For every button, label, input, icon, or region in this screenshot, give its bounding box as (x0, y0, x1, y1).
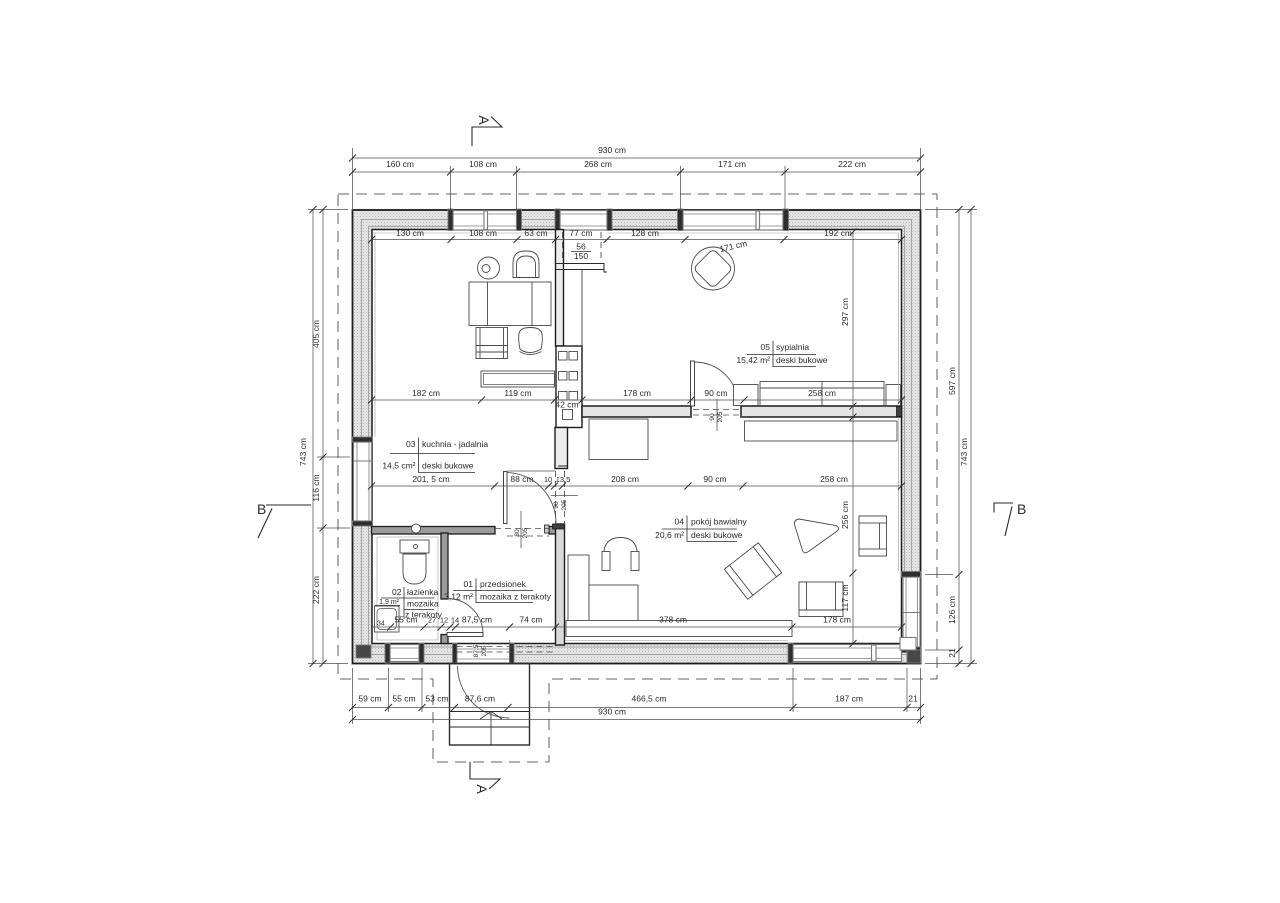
svg-text:B: B (257, 501, 266, 517)
svg-text:21: 21 (908, 694, 918, 704)
svg-text:178 cm: 178 cm (623, 388, 651, 398)
svg-text:150: 150 (574, 251, 588, 261)
svg-text:02: 02 (392, 587, 402, 597)
svg-text:14,5 cm²: 14,5 cm² (382, 461, 415, 471)
svg-text:405 cm: 405 cm (311, 320, 321, 348)
svg-text:05: 05 (761, 342, 771, 352)
svg-text:108 cm: 108 cm (469, 228, 497, 238)
svg-text:80: 80 (514, 529, 521, 537)
svg-text:14: 14 (451, 616, 459, 625)
svg-text:87,6 cm: 87,6 cm (465, 694, 495, 704)
svg-text:205: 205 (717, 411, 724, 422)
svg-text:160 cm: 160 cm (386, 159, 414, 169)
svg-text:90: 90 (709, 413, 716, 421)
svg-text:222 cm: 222 cm (838, 159, 866, 169)
svg-text:178 cm: 178 cm (823, 615, 851, 625)
svg-text:04: 04 (675, 517, 685, 527)
svg-text:55 cm: 55 cm (392, 694, 415, 704)
svg-text:10: 10 (544, 475, 552, 484)
svg-text:z terakoty: z terakoty (405, 610, 443, 620)
svg-text:378 cm: 378 cm (659, 615, 687, 625)
svg-text:117 cm: 117 cm (840, 584, 850, 611)
svg-text:201, 5 cm: 201, 5 cm (412, 474, 449, 484)
svg-text:łazienka: łazienka (407, 587, 438, 597)
svg-text:deski bukowe: deski bukowe (422, 461, 474, 471)
svg-text:A: A (474, 784, 490, 794)
svg-text:15,42 m²: 15,42 m² (736, 355, 770, 365)
svg-text:88 cm: 88 cm (510, 474, 533, 484)
svg-text:930 cm: 930 cm (598, 707, 626, 717)
svg-text:208 cm: 208 cm (611, 474, 639, 484)
svg-text:34: 34 (377, 621, 385, 628)
svg-text:258 cm: 258 cm (808, 388, 836, 398)
svg-text:87,5: 87,5 (473, 644, 480, 657)
svg-text:268 cm: 268 cm (584, 159, 612, 169)
svg-text:przedsionek: przedsionek (480, 579, 527, 589)
svg-text:20,6 m²: 20,6 m² (655, 530, 684, 540)
svg-text:192 cm: 192 cm (824, 228, 852, 238)
svg-text:126 cm: 126 cm (947, 596, 957, 624)
svg-text:01: 01 (464, 579, 474, 589)
svg-text:56: 56 (576, 242, 586, 252)
svg-text:116 cm: 116 cm (311, 474, 321, 501)
svg-text:63 cm: 63 cm (524, 228, 547, 238)
svg-text:deski bukowe: deski bukowe (691, 530, 743, 540)
svg-text:466,5 cm: 466,5 cm (632, 694, 667, 704)
svg-text:kuchnia - jadalnia: kuchnia - jadalnia (422, 439, 488, 449)
svg-text:743 cm: 743 cm (959, 438, 969, 466)
svg-text:mozaika: mozaika (407, 599, 439, 609)
svg-text:90: 90 (553, 501, 560, 509)
svg-text:222 cm: 222 cm (311, 576, 321, 604)
svg-text:1,9 m²: 1,9 m² (379, 599, 400, 606)
svg-text:597 cm: 597 cm (947, 367, 957, 395)
svg-text:171 cm: 171 cm (718, 159, 746, 169)
svg-text:sypialnia: sypialnia (776, 342, 809, 352)
svg-text:21: 21 (947, 648, 957, 658)
svg-text:13,5: 13,5 (556, 475, 571, 484)
svg-text:42 cm: 42 cm (555, 400, 578, 410)
svg-text:53 cm: 53 cm (425, 694, 448, 704)
svg-text:3,12 m²: 3,12 m² (444, 592, 473, 602)
svg-text:108 cm: 108 cm (469, 159, 497, 169)
svg-text:205: 205 (522, 527, 529, 538)
svg-text:930 cm: 930 cm (598, 145, 626, 155)
svg-text:187 cm: 187 cm (835, 694, 863, 704)
svg-text:130 cm: 130 cm (396, 228, 424, 238)
svg-text:mozaika z terakoty: mozaika z terakoty (480, 592, 552, 602)
svg-text:B: B (1017, 501, 1026, 517)
svg-text:74 cm: 74 cm (519, 615, 542, 625)
svg-text:182 cm: 182 cm (412, 388, 440, 398)
svg-text:128 cm: 128 cm (631, 228, 659, 238)
svg-text:77 cm: 77 cm (569, 228, 592, 238)
svg-text:03: 03 (406, 439, 416, 449)
svg-text:59 cm: 59 cm (358, 694, 381, 704)
svg-text:743 cm: 743 cm (298, 438, 308, 466)
svg-text:A: A (476, 115, 492, 125)
svg-text:90 cm: 90 cm (704, 388, 727, 398)
svg-text:205: 205 (481, 645, 488, 656)
svg-text:pokój bawialny: pokój bawialny (691, 517, 748, 527)
svg-text:256 cm: 256 cm (840, 501, 850, 529)
svg-text:90 cm: 90 cm (703, 474, 726, 484)
svg-text:87,5 cm: 87,5 cm (462, 615, 492, 625)
svg-text:deski bukowe: deski bukowe (776, 355, 828, 365)
svg-text:205: 205 (561, 499, 568, 510)
svg-text:297 cm: 297 cm (840, 298, 850, 326)
svg-text:119 cm: 119 cm (504, 388, 531, 398)
svg-text:258 cm: 258 cm (820, 474, 848, 484)
